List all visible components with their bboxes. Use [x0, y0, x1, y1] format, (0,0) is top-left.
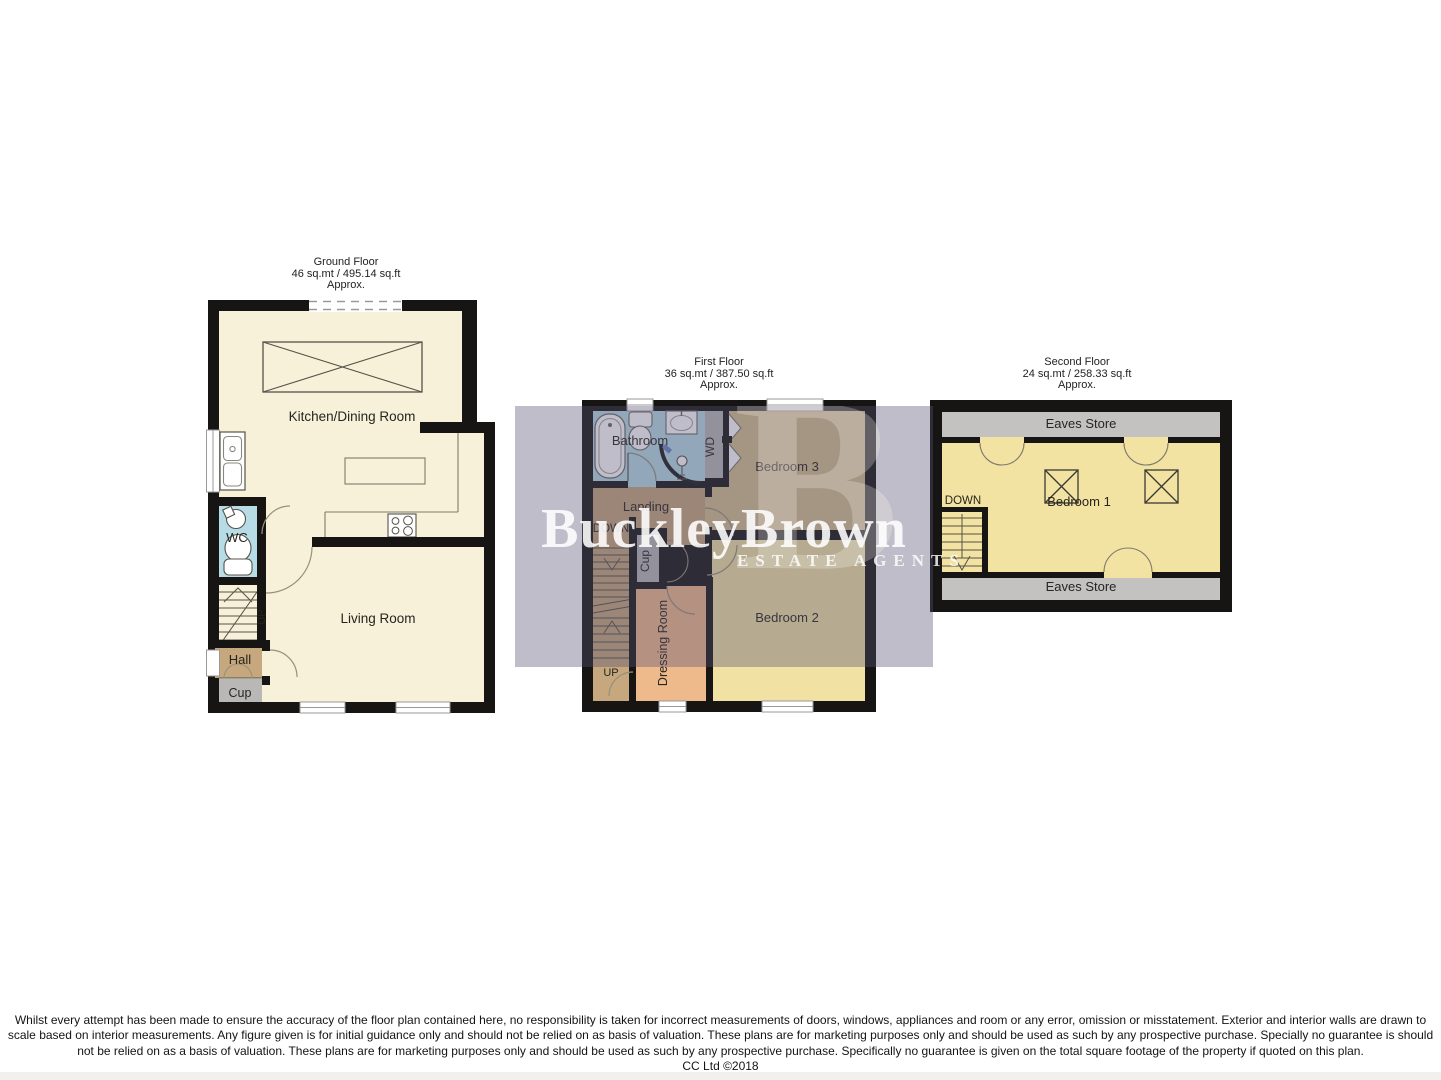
- gf-left-window: [207, 430, 220, 492]
- disclaimer-line-2: scale based on interior measurements. An…: [0, 1028, 1441, 1043]
- eaves-store-bottom-label: Eaves Store: [1046, 579, 1117, 594]
- wc-label: WC: [226, 530, 248, 545]
- watermark-brand: BuckleyBrown: [515, 501, 933, 557]
- gf-divider-wall: [312, 537, 484, 547]
- hall-label: Hall: [229, 652, 252, 667]
- bedroom1-label: Bedroom 1: [1047, 494, 1111, 509]
- kitchen-sink: [220, 432, 245, 490]
- gf-cup-label: Cup: [229, 686, 252, 700]
- sf-down-label: DOWN: [945, 495, 981, 507]
- disclaimer: Whilst every attempt has been made to en…: [0, 1013, 1441, 1074]
- gf-up-label: UP: [256, 609, 268, 624]
- watermark-tagline: ESTATE AGENTS: [737, 551, 966, 571]
- kitchen-label: Kitchen/Dining Room: [289, 409, 416, 424]
- eaves-store-top-label: Eaves Store: [1046, 416, 1117, 431]
- ground-floor-plan: Kitchen/Dining Room WC Living Room Hall …: [207, 299, 496, 713]
- living-room-label: Living Room: [340, 611, 415, 626]
- gf-dashed-opening: [309, 299, 402, 312]
- hob-icon: [388, 514, 416, 537]
- second-floor-plan: Eaves Store Bedroom 1 DOWN Eaves Store: [930, 400, 1232, 612]
- ff-up-label: UP: [603, 667, 618, 679]
- disclaimer-line-3: not be relied on as a basis of valuation…: [0, 1044, 1441, 1059]
- front-door-opening: [207, 650, 220, 676]
- bottom-strip: [0, 1072, 1441, 1080]
- disclaimer-line-1: Whilst every attempt has been made to en…: [0, 1013, 1441, 1028]
- floorplan-page: Ground Floor 46 sq.mt / 495.14 sq.ft App…: [0, 0, 1441, 1080]
